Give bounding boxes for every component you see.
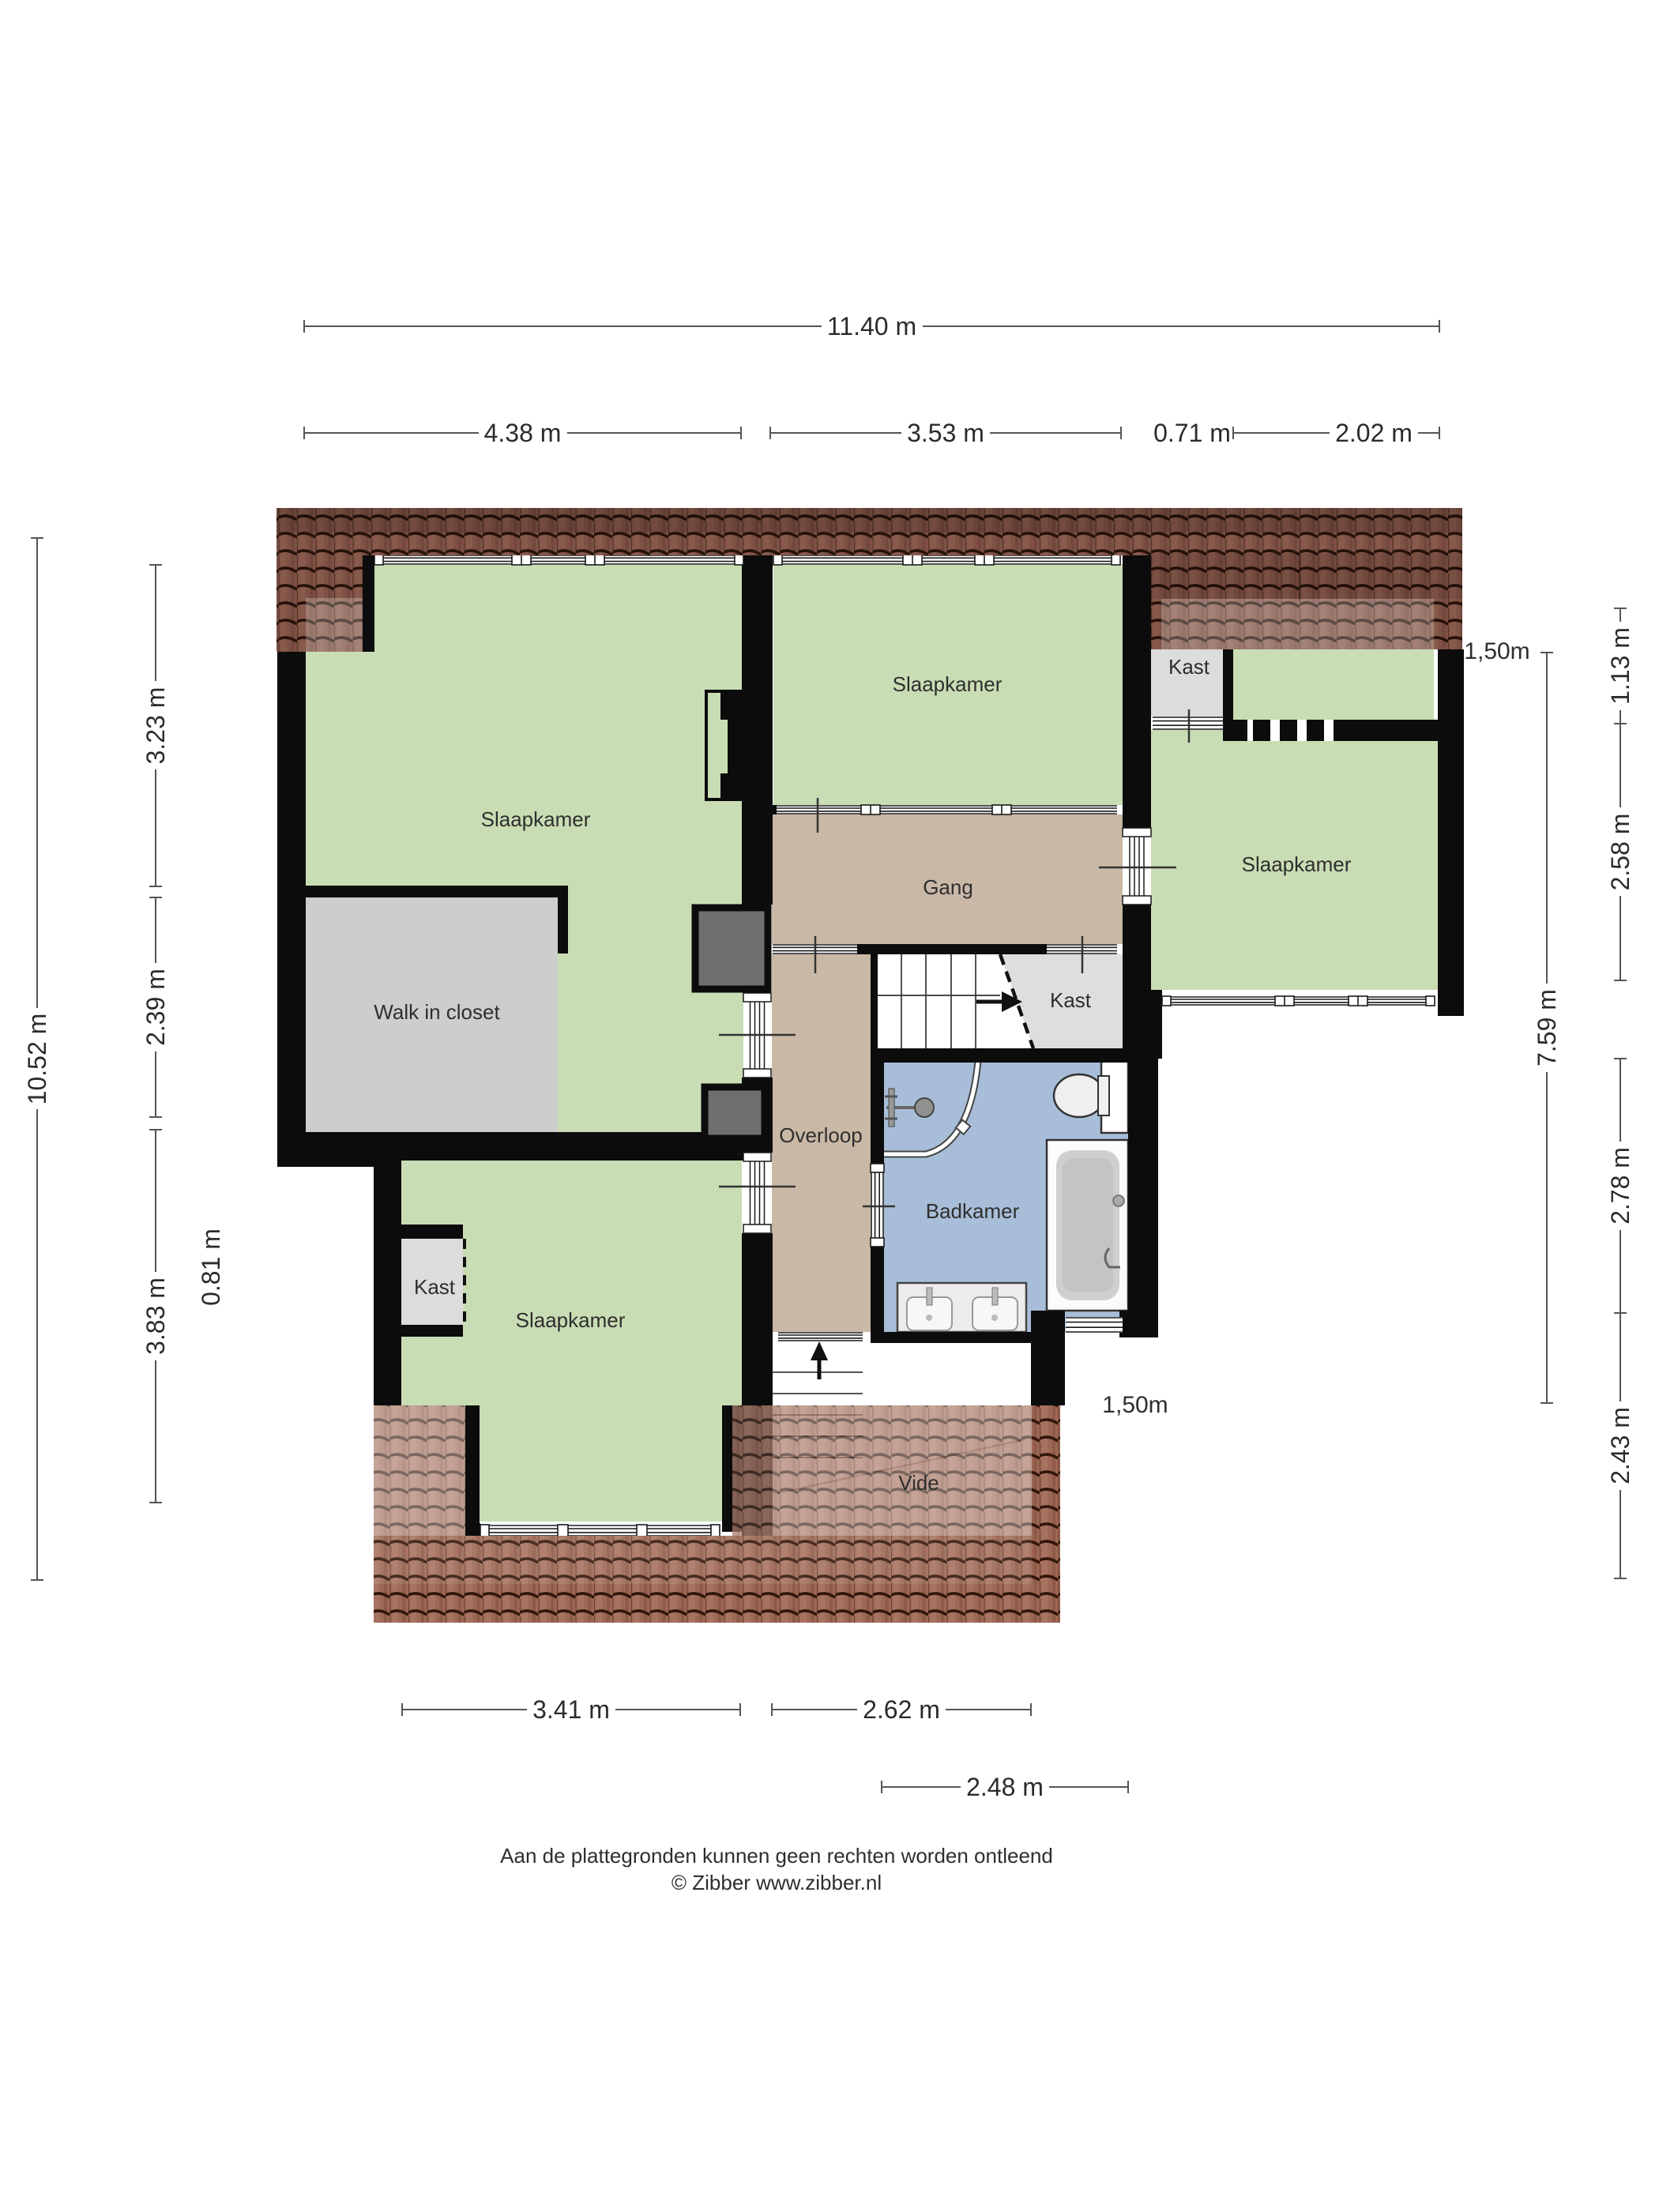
svg-text:11.40 m: 11.40 m [827, 312, 916, 340]
svg-text:2.48 m: 2.48 m [966, 1773, 1044, 1801]
svg-text:3.41 m: 3.41 m [532, 1695, 610, 1724]
svg-text:3.83 m: 3.83 m [141, 1277, 170, 1355]
svg-text:1,50m: 1,50m [1464, 638, 1529, 664]
svg-text:Slaapkamer: Slaapkamer [481, 807, 591, 831]
svg-text:Slaapkamer: Slaapkamer [1242, 852, 1352, 876]
svg-text:2.43 m: 2.43 m [1606, 1407, 1635, 1484]
svg-text:Kast: Kast [414, 1275, 456, 1299]
svg-text:0.81 m: 0.81 m [197, 1228, 225, 1306]
svg-text:2.62 m: 2.62 m [863, 1695, 940, 1724]
svg-text:Badkamer: Badkamer [926, 1199, 1020, 1223]
svg-text:Vide: Vide [898, 1471, 939, 1495]
svg-text:1,50m: 1,50m [1102, 1392, 1168, 1418]
svg-text:2.39 m: 2.39 m [141, 969, 170, 1046]
svg-text:2.58 m: 2.58 m [1606, 814, 1635, 891]
svg-text:Aan de plattegronden kunnen ge: Aan de plattegronden kunnen geen rechten… [500, 1844, 1053, 1868]
svg-text:0.71 m: 0.71 m [1153, 419, 1231, 447]
svg-text:Kast: Kast [1050, 988, 1092, 1012]
svg-text:3.23 m: 3.23 m [141, 687, 170, 765]
svg-text:3.53 m: 3.53 m [907, 419, 984, 447]
svg-text:1.13 m: 1.13 m [1606, 627, 1635, 705]
svg-text:2.78 m: 2.78 m [1606, 1147, 1635, 1224]
svg-text:7.59 m: 7.59 m [1533, 989, 1561, 1066]
svg-text:Gang: Gang [923, 875, 973, 899]
svg-text:© Zibber www.zibber.nl: © Zibber www.zibber.nl [671, 1871, 882, 1894]
svg-text:Slaapkamer: Slaapkamer [516, 1308, 626, 1332]
svg-text:10.52 m: 10.52 m [23, 1014, 51, 1105]
svg-text:2.02 m: 2.02 m [1335, 419, 1413, 447]
svg-text:4.38 m: 4.38 m [484, 419, 562, 447]
svg-text:Slaapkamer: Slaapkamer [893, 672, 1003, 696]
svg-text:Overloop: Overloop [779, 1123, 863, 1147]
svg-text:Kast: Kast [1168, 655, 1210, 679]
svg-text:Walk in closet: Walk in closet [374, 1000, 500, 1024]
